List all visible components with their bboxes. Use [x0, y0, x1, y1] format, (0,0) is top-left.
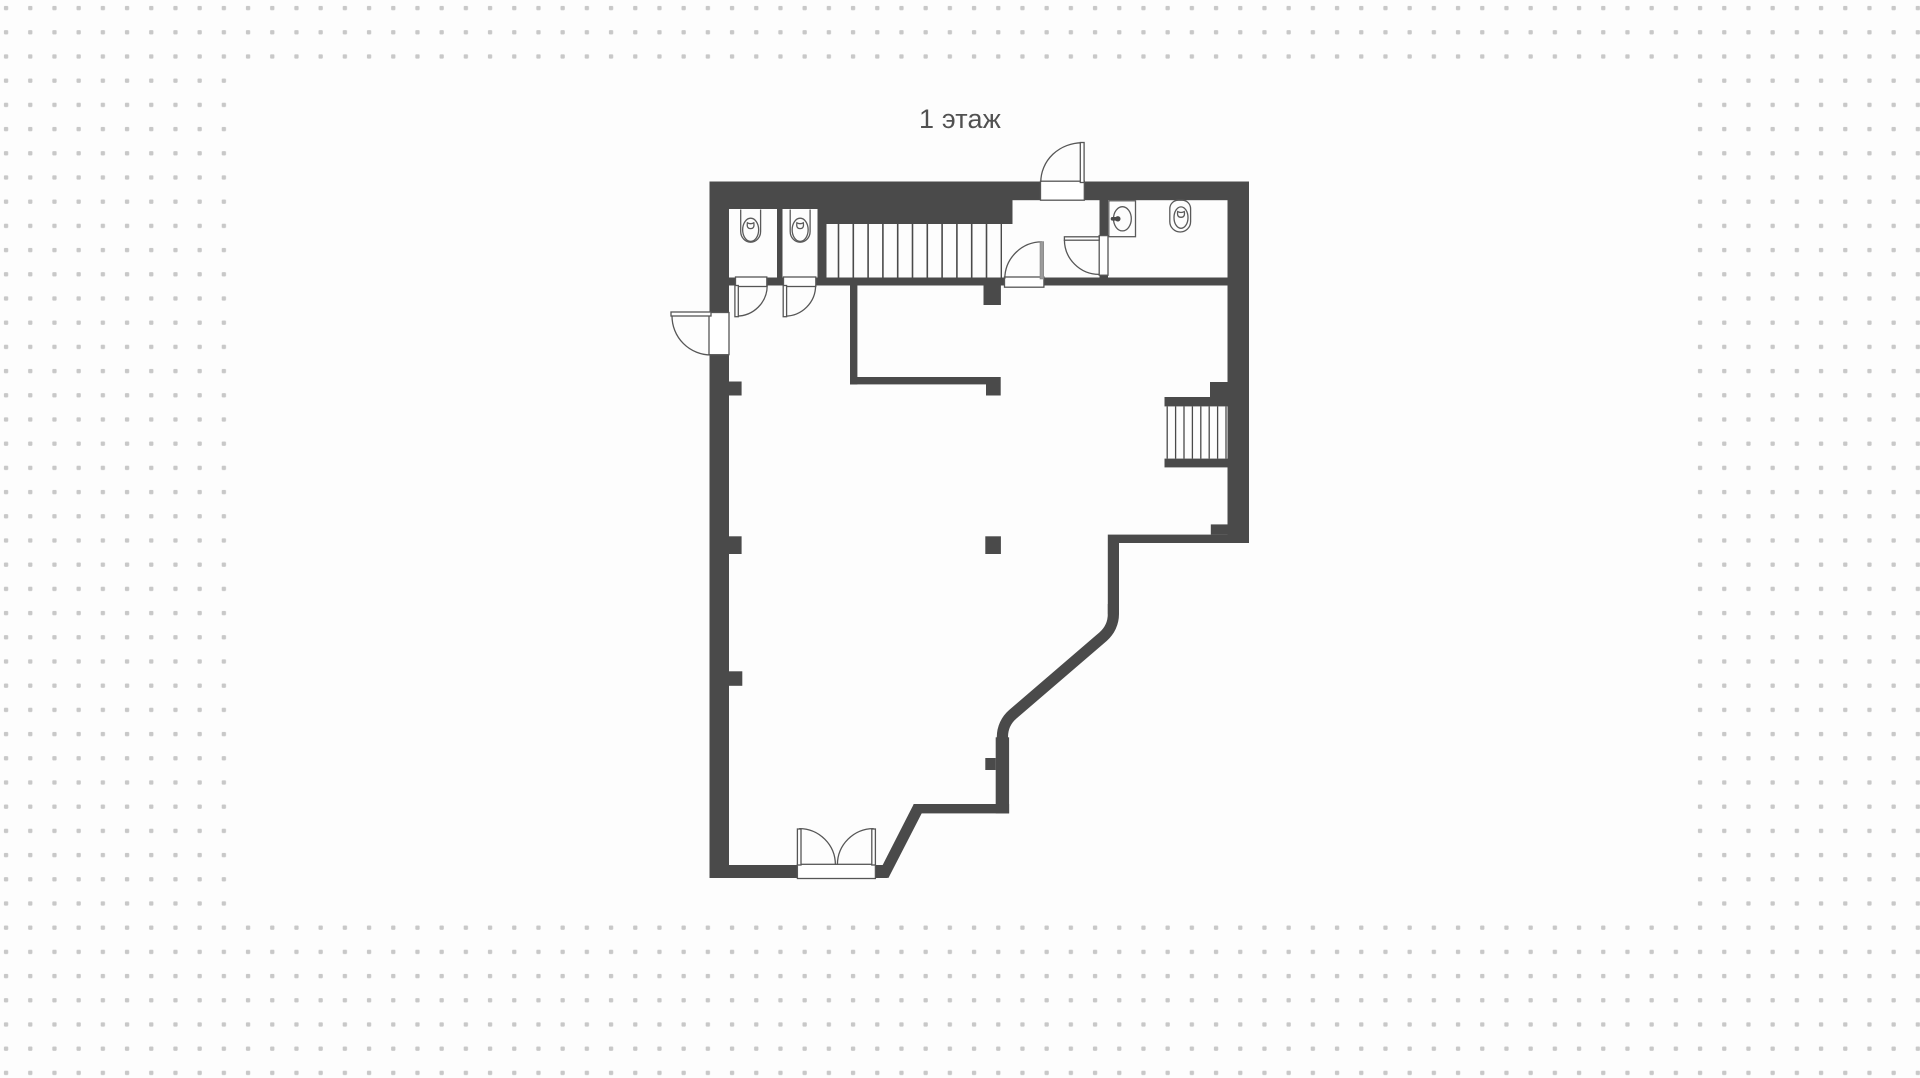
- svg-text:1 этаж: 1 этаж: [919, 104, 1001, 134]
